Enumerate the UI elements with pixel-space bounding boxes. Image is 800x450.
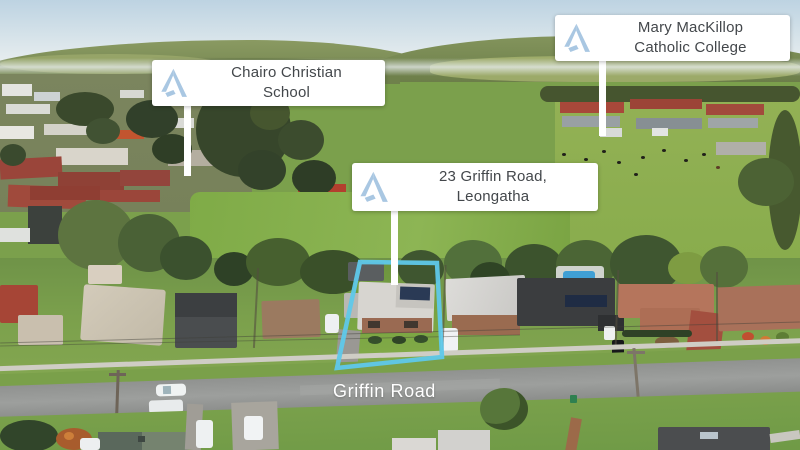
aerial-photo-scene: Chairo Christian School Mary MacKillop C…	[0, 0, 800, 450]
label-pointer-line	[599, 58, 606, 136]
label-line-1: 23 Griffin Road,	[439, 168, 547, 185]
label-line-2: Leongatha	[457, 188, 530, 205]
brand-a-icon	[352, 170, 396, 204]
brand-a-icon	[152, 67, 196, 99]
label-line-1: Mary MacKillop	[638, 19, 743, 36]
label-text: 23 Griffin Road, Leongatha	[396, 167, 598, 207]
label-subject-property-address: 23 Griffin Road, Leongatha	[352, 163, 598, 211]
label-pointer-line	[184, 104, 191, 176]
label-pointer-line	[391, 209, 398, 285]
label-text: Mary MacKillop Catholic College	[599, 18, 790, 58]
label-mary-mackillop-college: Mary MacKillop Catholic College	[555, 15, 790, 61]
label-chairo-christian-school: Chairo Christian School	[152, 60, 385, 106]
brand-a-icon	[555, 22, 599, 54]
label-text: Chairo Christian School	[196, 63, 385, 103]
road-name-label: Griffin Road	[333, 381, 436, 402]
label-line-2: Catholic College	[634, 39, 746, 56]
label-line-1: Chairo Christian	[231, 64, 342, 81]
label-line-2: School	[263, 84, 310, 101]
